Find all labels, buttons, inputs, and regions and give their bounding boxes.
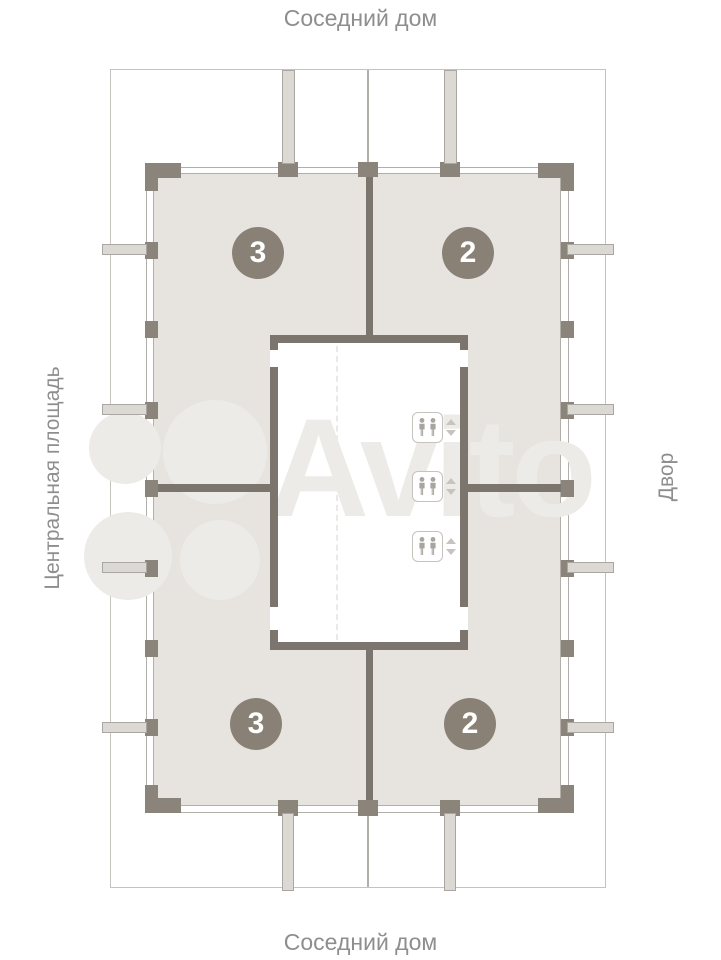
elevator-up-arrow-icon: [446, 538, 456, 544]
elevator-icon: [412, 412, 458, 443]
passengers-icon: [416, 476, 440, 498]
elevators-layer: [0, 0, 721, 960]
elevator-call-buttons: [443, 412, 458, 443]
elevator-cabin-icon: [412, 471, 443, 502]
passengers-icon: [416, 417, 440, 439]
elevator-down-arrow-icon: [446, 549, 456, 555]
elevator-call-buttons: [443, 471, 458, 502]
elevator-up-arrow-icon: [446, 419, 456, 425]
elevator-call-buttons: [443, 531, 458, 562]
elevator-cabin-icon: [412, 412, 443, 443]
elevator-icon: [412, 471, 458, 502]
passengers-icon: [416, 536, 440, 558]
elevator-icon: [412, 531, 458, 562]
elevator-up-arrow-icon: [446, 478, 456, 484]
floor-plan: Соседний дом Соседний дом Центральная пл…: [0, 0, 721, 960]
elevator-cabin-icon: [412, 531, 443, 562]
elevator-down-arrow-icon: [446, 489, 456, 495]
elevator-down-arrow-icon: [446, 430, 456, 436]
